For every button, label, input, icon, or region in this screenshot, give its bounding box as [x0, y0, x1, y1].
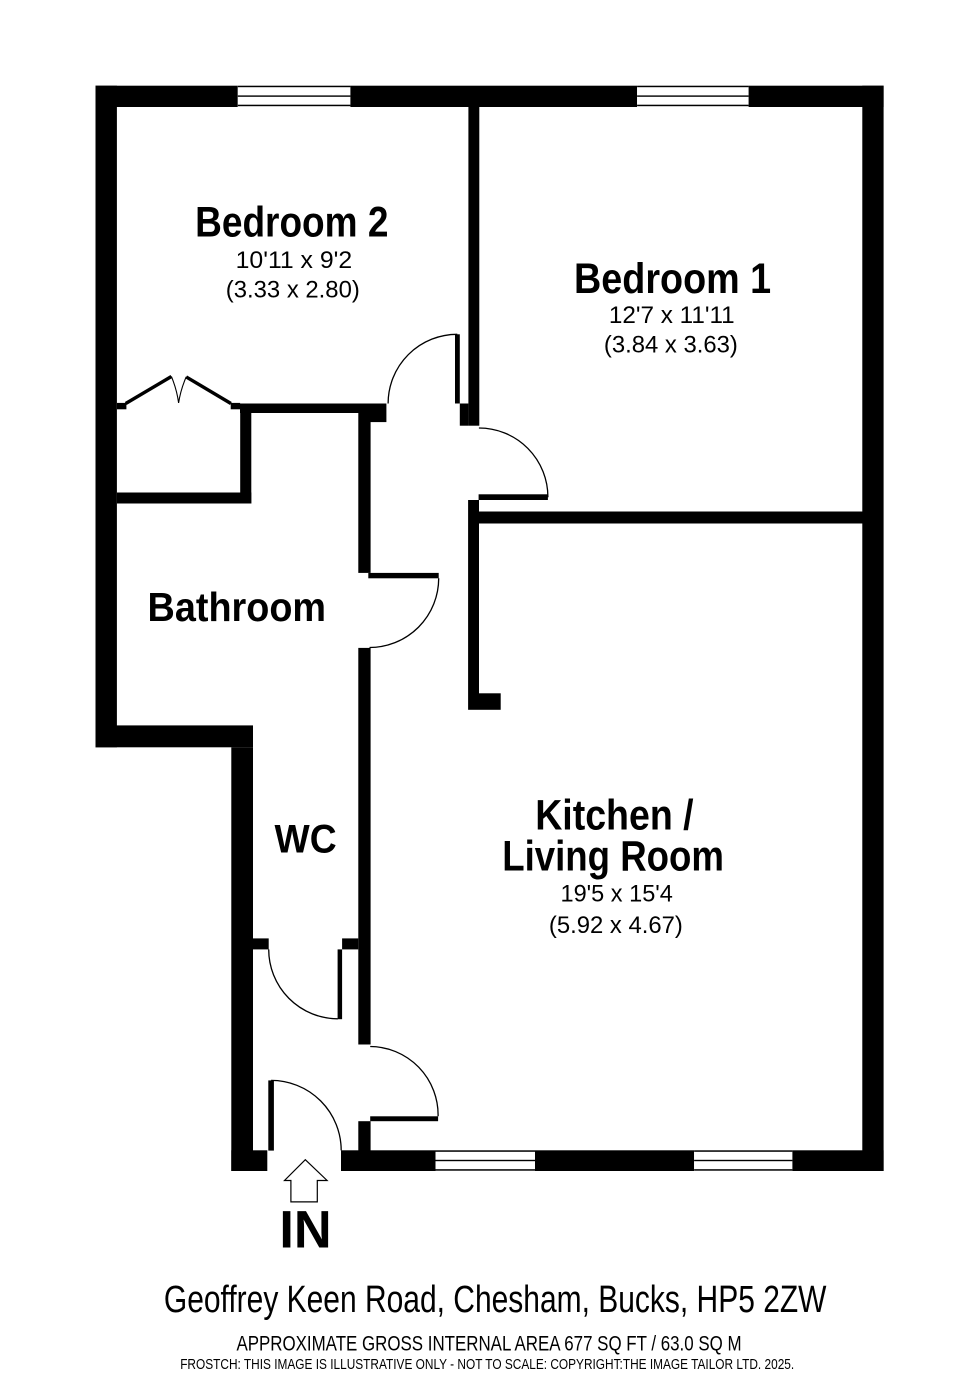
svg-text:Bedroom 2: Bedroom 2 — [195, 199, 388, 246]
svg-text:APPROXIMATE GROSS INTERNAL ARE: APPROXIMATE GROSS INTERNAL AREA 677 SQ F… — [236, 1332, 741, 1356]
svg-text:WC: WC — [275, 817, 337, 861]
svg-text:19'5 x 15'4: 19'5 x 15'4 — [561, 881, 673, 908]
svg-text:12'7 x 11'11: 12'7 x 11'11 — [609, 302, 735, 329]
svg-text:Bedroom 1: Bedroom 1 — [574, 255, 771, 303]
svg-text:Bathroom: Bathroom — [148, 584, 327, 630]
svg-text:(3.84 x 3.63): (3.84 x 3.63) — [604, 332, 738, 359]
svg-text:Geoffrey Keen Road, Chesham, B: Geoffrey Keen Road, Chesham, Bucks, HP5 … — [164, 1279, 827, 1321]
svg-text:(3.33 x 2.80): (3.33 x 2.80) — [226, 277, 360, 304]
svg-text:(5.92 x 4.67): (5.92 x 4.67) — [549, 912, 683, 939]
svg-text:Living Room: Living Room — [502, 833, 724, 881]
svg-text:FROSTCH: THIS IMAGE IS ILLUSTR: FROSTCH: THIS IMAGE IS ILLUSTRATIVE ONLY… — [180, 1356, 794, 1373]
svg-text:IN: IN — [279, 1200, 331, 1259]
svg-text:10'11 x 9'2: 10'11 x 9'2 — [236, 247, 353, 274]
